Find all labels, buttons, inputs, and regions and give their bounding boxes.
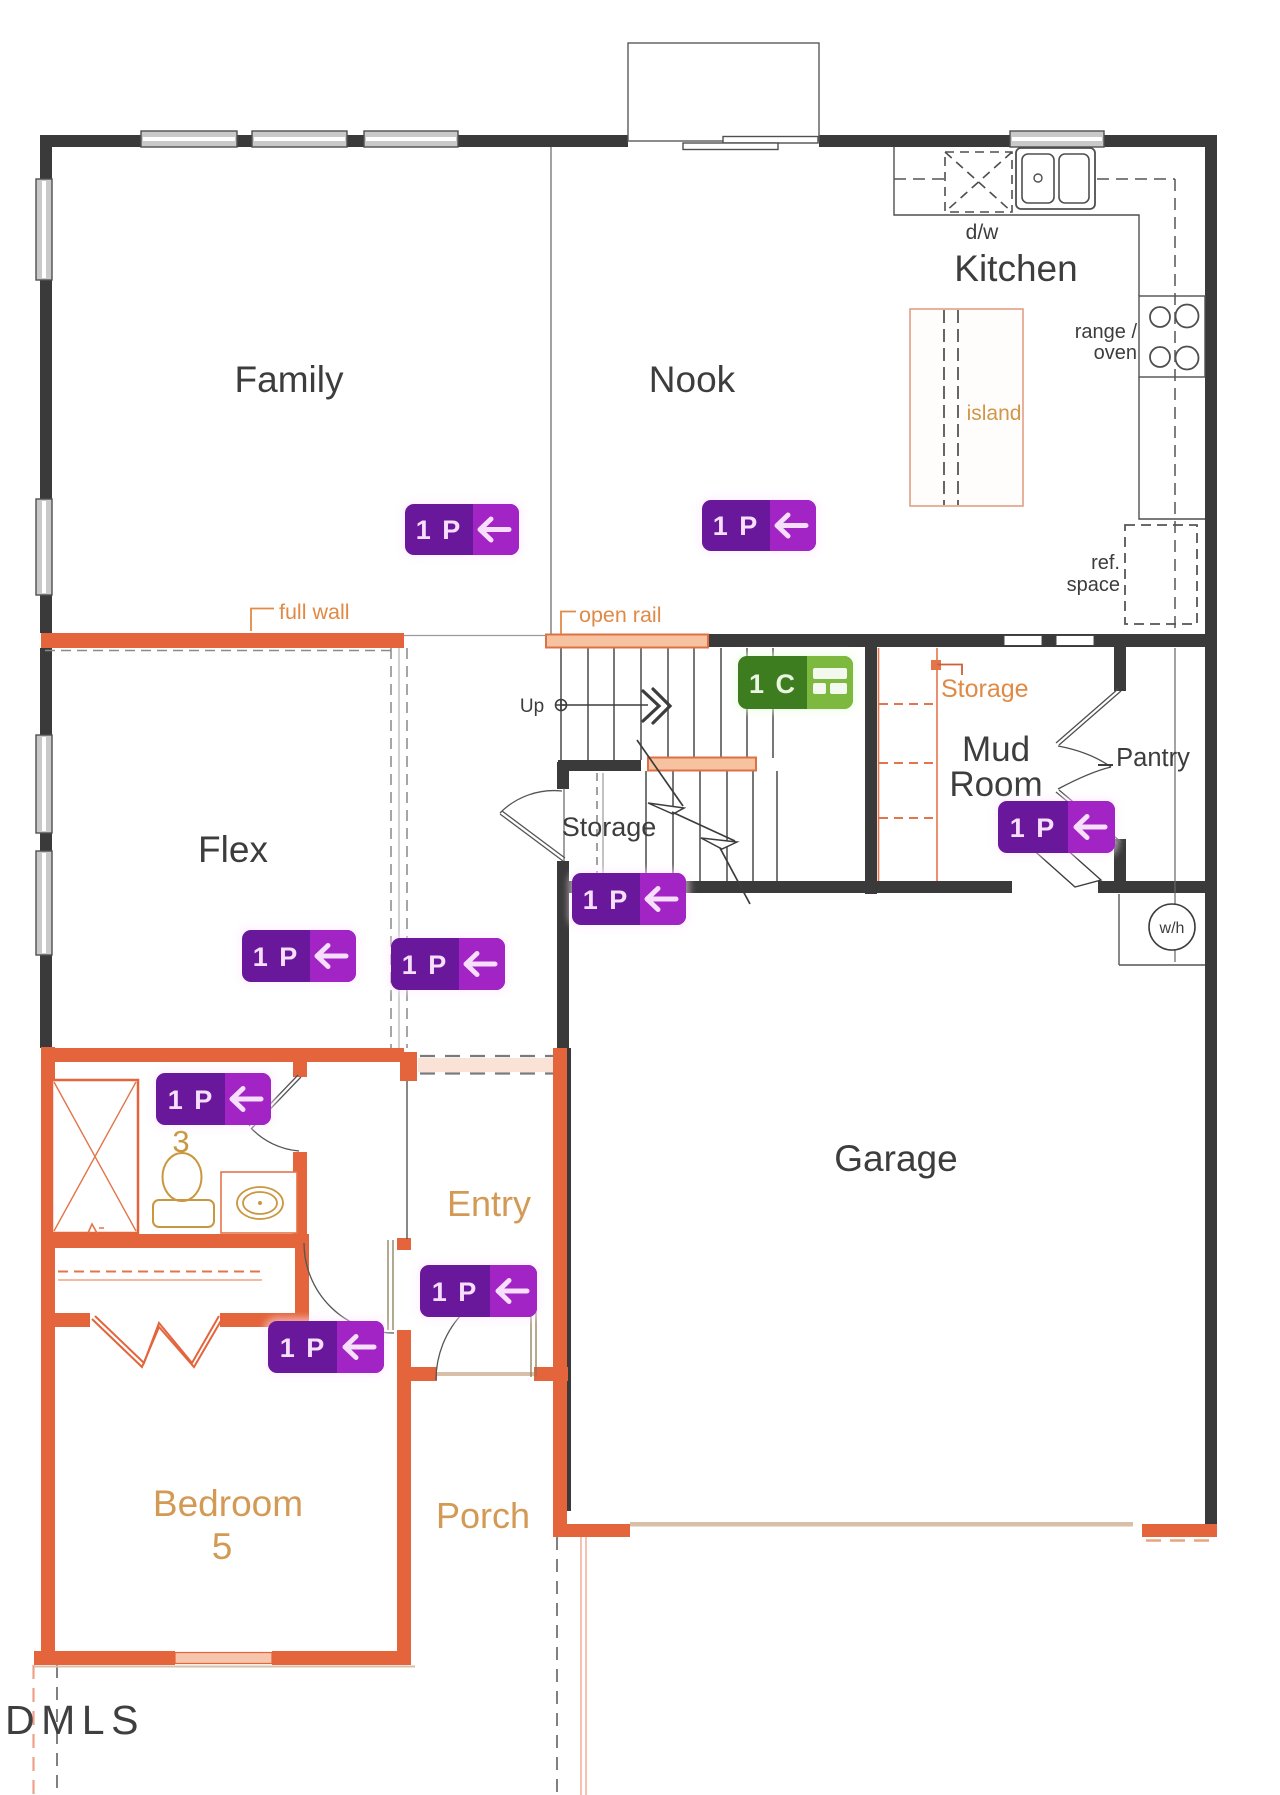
svg-text:1 P: 1 P <box>713 511 760 541</box>
svg-text:Flex: Flex <box>198 829 268 870</box>
svg-text:Kitchen: Kitchen <box>954 248 1077 289</box>
svg-text:space: space <box>1067 574 1120 596</box>
svg-text:Mud: Mud <box>962 730 1030 769</box>
svg-text:1 P: 1 P <box>432 1277 479 1307</box>
svg-text:d/w: d/w <box>966 221 1000 244</box>
svg-text:oven: oven <box>1094 342 1137 364</box>
svg-text:1 P: 1 P <box>168 1085 215 1115</box>
svg-text:Bedroom: Bedroom <box>153 1483 303 1524</box>
svg-text:1 C: 1 C <box>749 669 797 699</box>
svg-text:Family: Family <box>235 359 344 400</box>
svg-text:island: island <box>967 402 1022 425</box>
svg-text:1 P: 1 P <box>1010 813 1057 843</box>
svg-text:Storage: Storage <box>562 812 657 842</box>
svg-text:1 P: 1 P <box>253 942 300 972</box>
svg-text:3: 3 <box>172 1124 189 1159</box>
svg-text:Up: Up <box>520 696 544 717</box>
svg-text:Nook: Nook <box>649 359 736 400</box>
svg-text:DMLS: DMLS <box>5 1697 145 1743</box>
svg-text:1 P: 1 P <box>416 515 463 545</box>
svg-text:ref.: ref. <box>1091 552 1120 574</box>
svg-text:Porch: Porch <box>436 1495 530 1536</box>
svg-text:w/h: w/h <box>1159 920 1185 937</box>
svg-text:full wall: full wall <box>279 600 350 624</box>
svg-text:Storage: Storage <box>941 675 1029 703</box>
svg-text:range /: range / <box>1075 321 1138 343</box>
svg-text:1 P: 1 P <box>583 885 630 915</box>
svg-text:Garage: Garage <box>834 1138 957 1179</box>
svg-text:Pantry: Pantry <box>1116 744 1190 772</box>
svg-text:1 P: 1 P <box>280 1333 327 1363</box>
svg-text:Entry: Entry <box>447 1183 531 1224</box>
svg-text:open rail: open rail <box>579 603 661 627</box>
svg-text:5: 5 <box>212 1526 233 1567</box>
svg-text:1 P: 1 P <box>402 950 449 980</box>
